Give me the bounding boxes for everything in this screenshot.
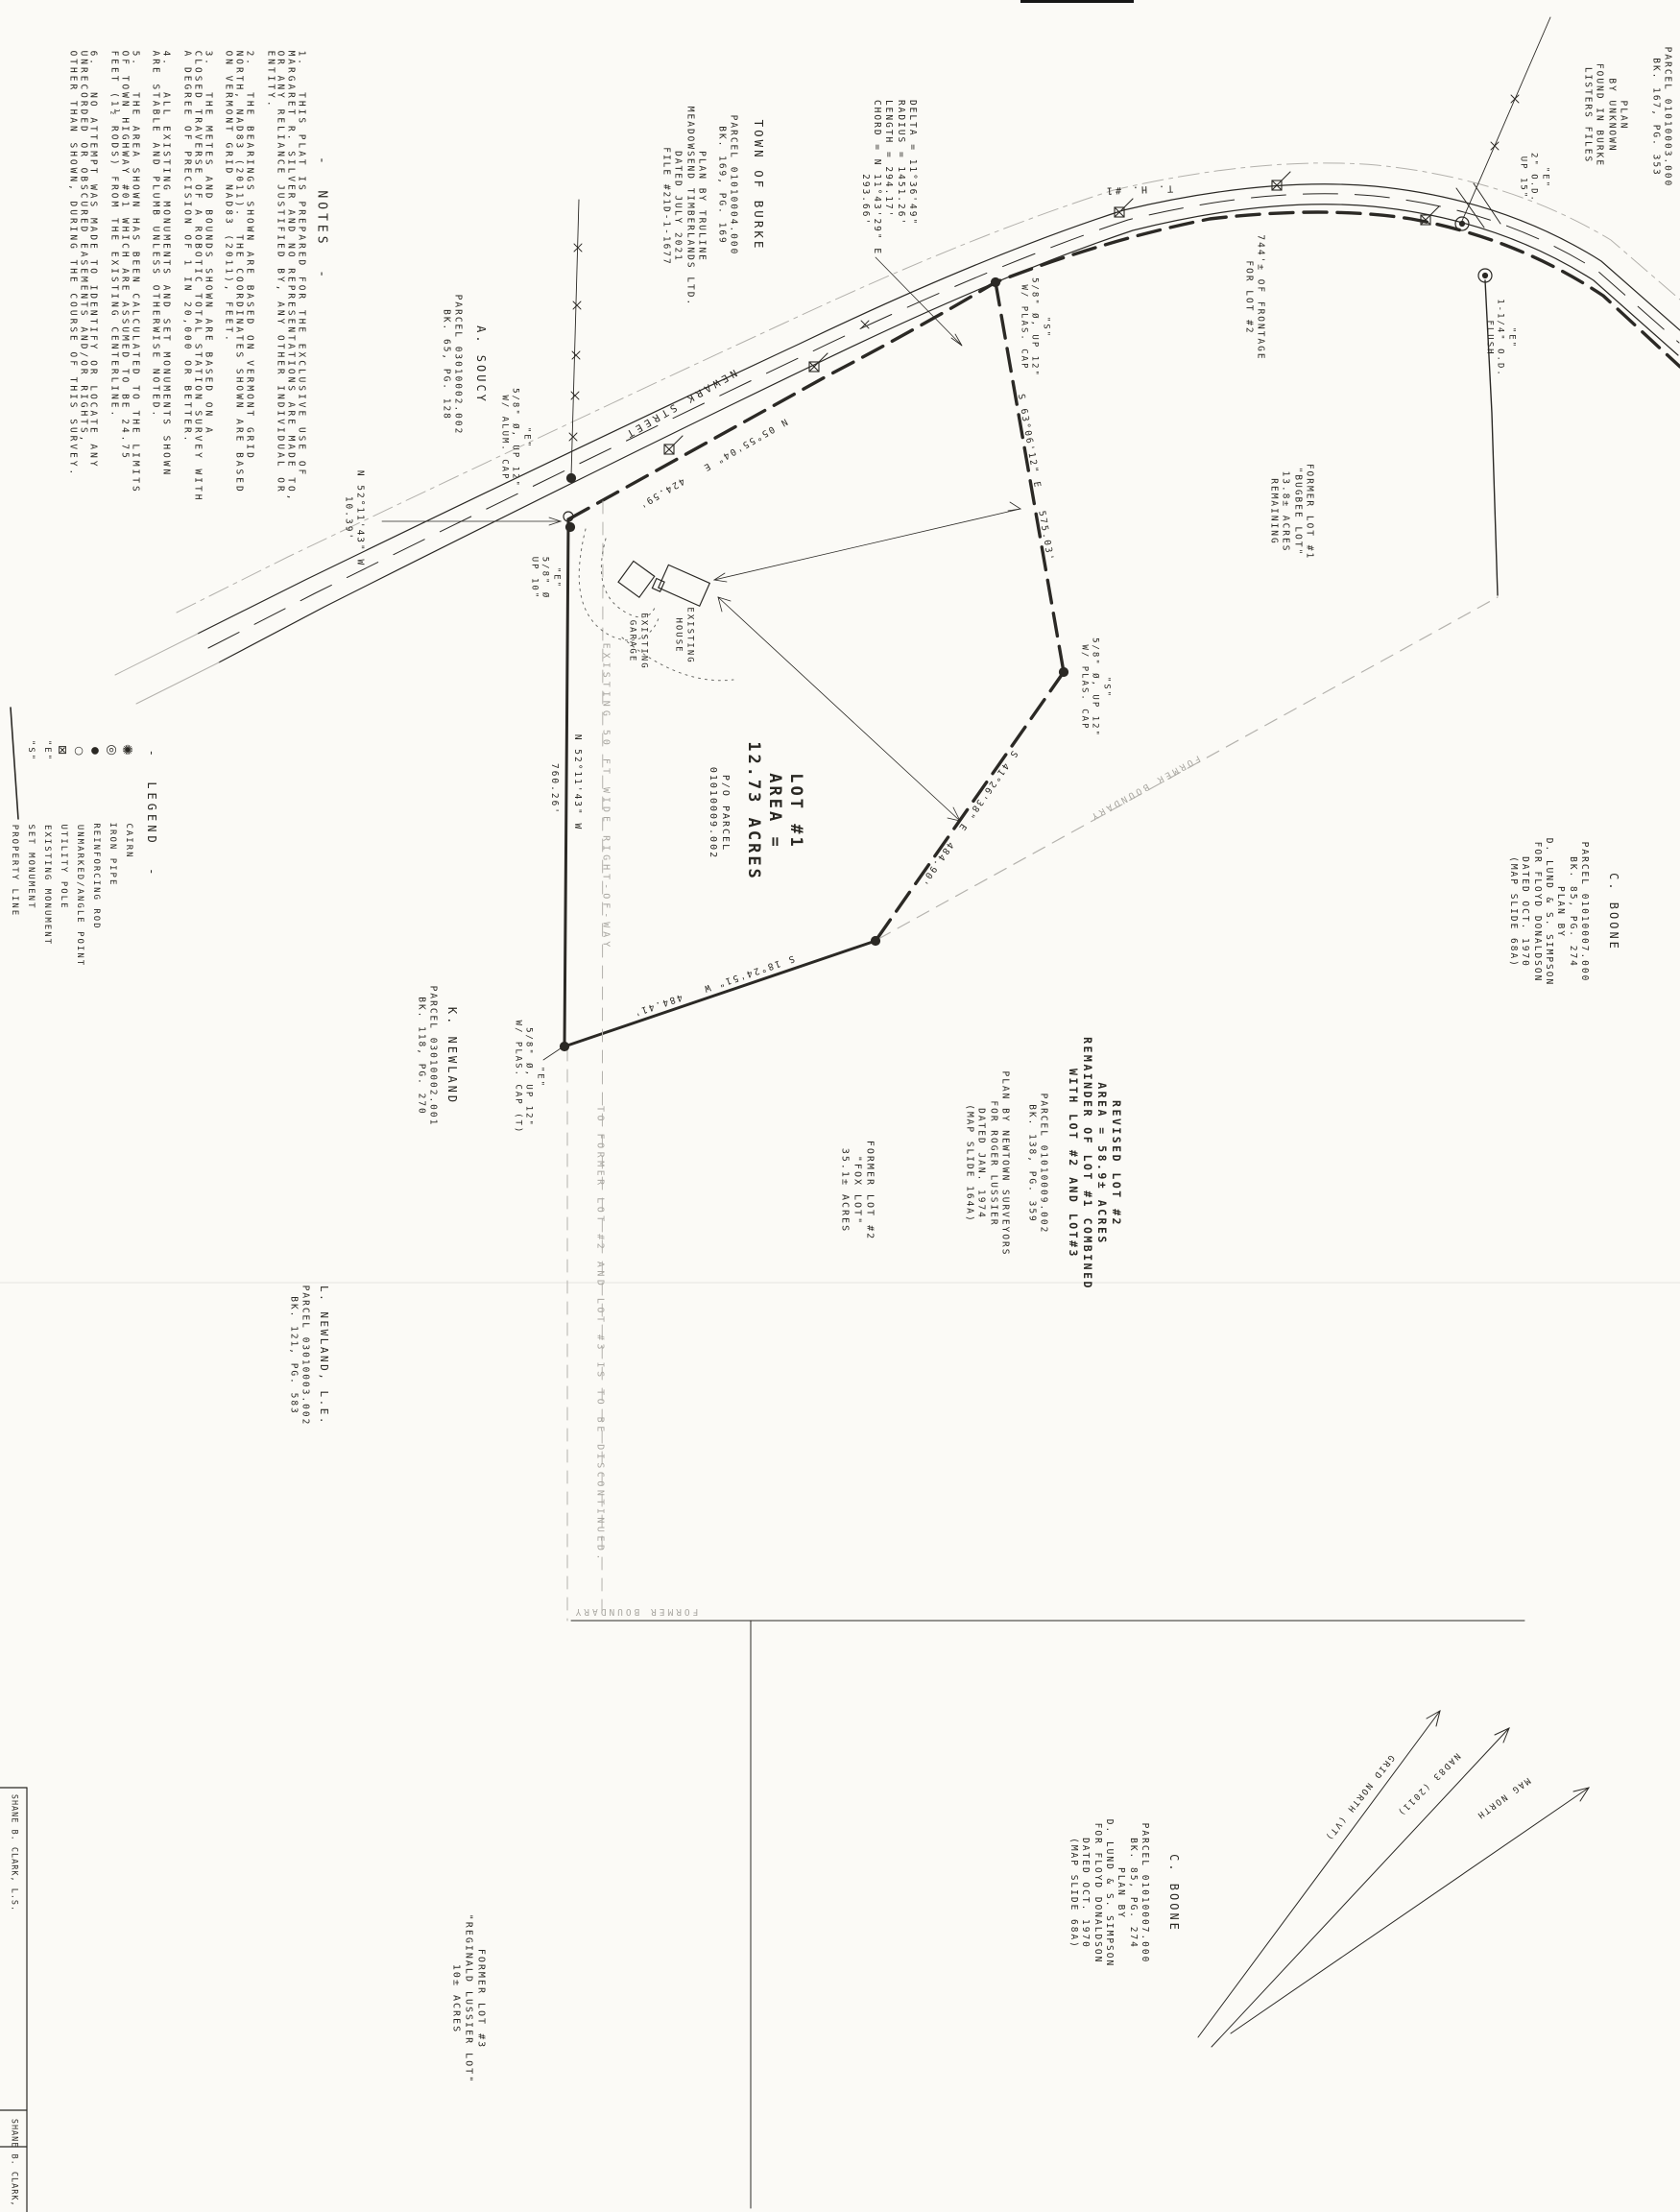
road-edge-nw — [198, 184, 1680, 634]
a-soucy-title: A. SOUCY — [472, 325, 488, 404]
curve-data: DELTA = 11°36'49" RADIUS = 1451.26' LENG… — [858, 100, 918, 255]
monument-e-up10: "E" 5/8" Ø UP 10" — [527, 557, 561, 600]
set-monument-symbol: "S" — [24, 740, 36, 761]
former-lot3-label: FORMER LOT #3 "REGINALD LUSSIER LOT" 10±… — [450, 1914, 488, 2083]
monument-s-mid: "S" 5/8" Ø, UP 12" W/ PLAS. CAP — [1077, 637, 1111, 737]
road-centerline — [208, 194, 1679, 648]
reinforcing-rod-icon: ● — [91, 745, 100, 757]
notes-title: - NOTES - — [313, 156, 329, 281]
town-of-burke-title: TOWN OF BURKE — [751, 120, 766, 252]
scan-artifact-top — [1020, 0, 1134, 3]
rebar-sw-corner — [561, 1043, 569, 1051]
frontage-note: 744'± OF FRONTAGE FOR LOT #2 — [1242, 234, 1266, 360]
titleblock-name-2: SHANE B. CLARK, L.S. — [8, 2119, 18, 2212]
l-newland-title: L. NEWLAND, L.E. — [317, 1286, 330, 1426]
revised-lot2-parcel: PARCEL 01010009.002 BK. 138, PG. 359 — [1025, 1094, 1049, 1235]
distance-76026: 760.26' — [548, 763, 560, 815]
existing-monument-symbol: "E" — [40, 740, 52, 761]
road-edge-se — [219, 204, 1678, 662]
legend-set-monument-label: SET MONUMENT — [24, 824, 36, 909]
k-newland-sub: PARCEL 03010002.001 BK. 118, PG. 270 — [415, 986, 439, 1127]
lot1-parcel: P/O PARCEL 01010009.002 — [707, 767, 732, 859]
revised-lot2-title: REVISED LOT #2 AREA = 58.9± ACRES REMAIN… — [1066, 1037, 1123, 1290]
tie-n5211: N 52°11'43" W 10.39' — [342, 470, 366, 566]
legend-property-line-label: PROPERTY LINE — [8, 825, 19, 917]
existing-buildings — [618, 561, 709, 606]
cairn-icon: ✺ — [122, 742, 133, 759]
notes-body: 1. THIS PLAT IS PREPARED FOR THE EXCLUSI… — [66, 51, 305, 503]
plat-sheet: - NOTES -1. THIS PLAT IS PREPARED FOR TH… — [0, 0, 1680, 2212]
legend-unmarked-label: UNMARKED/ANGLE POINT — [73, 825, 84, 967]
legend-iron-pipe-label: IRON PIPE — [106, 823, 117, 887]
c-boone-bottom-sub: PARCEL 01010007.000 BK. 85, PG. 274 PLAN… — [1068, 1819, 1150, 1967]
l-newland-sub: PARCEL 03010003.002 BK. 121, PG. 583 — [287, 1286, 311, 1427]
titleblock-name-1: SHANE B. CLARK, L.S. — [8, 1794, 18, 1911]
iron-pipe-icon: ◎ — [106, 743, 116, 759]
th1-label: T. H. #1 — [1104, 181, 1174, 197]
legend-property-line-sample — [11, 708, 18, 819]
rebar-corner — [566, 523, 575, 532]
rebar-fence-end — [567, 474, 576, 483]
monument-e-alum: "E" 5/8" Ø, UP 12" W/ ALUM. CAP — [497, 388, 531, 488]
town-of-burke-parcel: PARCEL 01010004.000 BK. 169, PG. 169 — [715, 115, 739, 256]
fox-lot-label: FORMER LOT #2 "FOX LOT" 35.1± ACRES — [839, 1141, 876, 1240]
boundary-n5211 — [564, 521, 568, 1046]
existing-house-label: EXISTING HOUSE — [672, 607, 694, 663]
row-label: EXISTING 50 FT WIDE RIGHT-OF-WAY — [600, 643, 612, 951]
existing-house-outline — [659, 565, 710, 606]
monument-e-114in: "E" 1-1/4" O.D. FLUSH — [1482, 299, 1516, 377]
legend-utility-pole-label: UTILITY POLE — [57, 824, 68, 909]
legend-title: - LEGEND - — [143, 750, 158, 879]
monument-e-2in: "E" 2" O.D. UP 15" — [1516, 153, 1549, 203]
road-newark-street — [177, 163, 1680, 662]
boundary-s1824 — [564, 941, 876, 1046]
legend-existing-monument-label: EXISTING MONUMENT — [40, 825, 52, 946]
c-boone-right-title: C. BOONE — [1605, 873, 1620, 951]
parcel-01010003: PARCEL 01010003.000 BK. 167, PG. 353 — [1649, 47, 1673, 188]
a-soucy-sub: PARCEL 03010002.002 BK. 65, PG. 128 — [440, 295, 464, 436]
monument-e-plas-t: "E" 5/8" Ø, UP 12" W/ PLAS. CAP (T) — [511, 1021, 544, 1135]
legend-reinforcing-rod-label: REINFORCING ROD — [89, 823, 101, 929]
rebar-south-s-cap — [872, 937, 880, 946]
c-boone-bottom-title: C. BOONE — [1165, 1854, 1181, 1933]
bugbee-lot-label: FORMER LOT #1 "BUGBEE LOT" 13.8± ACRES R… — [1267, 464, 1314, 560]
plan-by-unknown: PLAN BY UNKNOWN FOUND IN BURKE LISTERS F… — [1581, 63, 1628, 167]
legend-cairn-label: CAIRN — [122, 823, 133, 858]
rebar-mid-s-cap — [1060, 668, 1068, 677]
monument-s-road: "S" 5/8" Ø, UP 12" W/ PLAS. CAP — [1017, 277, 1050, 377]
bearing-n5211: N 52°11'43" W — [571, 734, 583, 830]
existing-garage-outline — [618, 561, 655, 597]
revised-lot2-plan: PLAN BY NEWTOWN SURVEYORS FOR ROGER LUSS… — [963, 1071, 1010, 1257]
utility-pole-icon: ⊠ — [58, 743, 67, 758]
utility-poles — [664, 172, 1439, 454]
k-newland-title: K. NEWLAND — [444, 1007, 459, 1105]
lot1-title: LOT #1 AREA = 12.73 ACRES — [743, 741, 806, 881]
town-of-burke-plan: PLAN BY TRULINE MEADOWSEND TIMBERLANDS L… — [660, 107, 707, 306]
existing-garage-label: EXISTING GARAGE — [626, 613, 648, 669]
row-discontinued-label: TO FORMER LOT #2 AND LOT #3 IS TO BE DIS… — [594, 1106, 607, 1563]
c-boone-right-sub: PARCEL 01010007.000 BK. 85, PG. 274 PLAN… — [1507, 838, 1590, 986]
unmarked-point-icon: ○ — [74, 744, 84, 757]
road-continuation-sw — [115, 634, 219, 704]
former-boundary-bottom-label: FORMER BOUNDARY — [573, 1605, 699, 1617]
road-row-nw — [177, 163, 1680, 613]
rebar-road-s-cap — [992, 278, 1000, 287]
